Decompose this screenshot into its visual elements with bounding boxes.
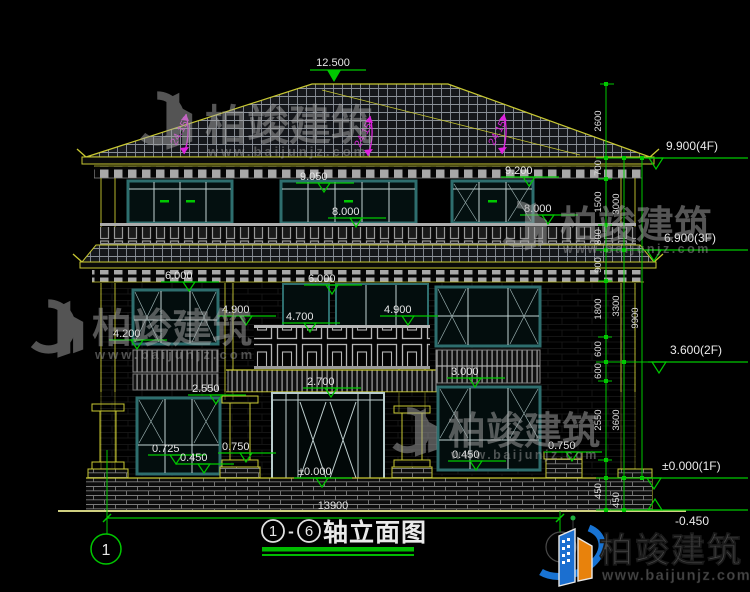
- spot-label: 0.725: [152, 443, 180, 455]
- title-axis-start: 1: [269, 523, 277, 540]
- title-axis-end: 6: [305, 523, 313, 540]
- dim-label: 3600: [611, 409, 622, 430]
- axis-bubble-number: 1: [102, 542, 111, 559]
- spot-label: 9.200: [505, 165, 533, 177]
- dentil-cornice-upper: [94, 166, 642, 178]
- dim-label: 700: [593, 160, 604, 176]
- dim-label: 1800: [593, 298, 604, 319]
- spot-label: 2.700: [307, 376, 335, 388]
- balcony-lattice-railing: [254, 325, 430, 369]
- dim-label: 600: [593, 341, 604, 357]
- title-underline-thin: [262, 554, 414, 556]
- elevation-drawing: 12.500 24.15° 24.15° 24.15° 9.050 9.200 …: [0, 0, 750, 592]
- dim-label: 2600: [593, 110, 604, 131]
- window-handle-mark: [488, 200, 497, 203]
- spot-label: 8.000: [332, 206, 360, 218]
- title-text: 轴立面图: [323, 518, 427, 547]
- dentil-band: [94, 166, 642, 178]
- flag-label: 3.600(2F): [670, 343, 722, 357]
- logo-url: www.baijunjz.com: [601, 568, 750, 584]
- spot-label: 6.000: [165, 270, 193, 282]
- window-left-1f: [137, 398, 220, 474]
- spot-label: 4.700: [286, 311, 314, 323]
- spot-label: 0.750: [222, 441, 250, 453]
- window-handle-mark: [344, 200, 353, 203]
- spot-label: 0.450: [180, 452, 208, 464]
- logo-tower-orange: [578, 538, 592, 581]
- dim-label: 600: [593, 363, 604, 379]
- watermark-text: 柏竣建筑: [205, 102, 373, 149]
- eave-fascia-lower: [80, 262, 656, 268]
- spot-label: 6.000: [308, 273, 336, 285]
- window-handle-mark: [186, 200, 195, 203]
- dim-label: 3300: [611, 295, 622, 316]
- watermark-url: www.baijunjz.com: [562, 242, 711, 256]
- watermark-url: www.baijunjz.com: [450, 448, 599, 462]
- watermark-url: www.baijunjz.com: [207, 144, 368, 159]
- spot-label: 9.050: [300, 171, 328, 183]
- bay-window-right-2f: [436, 287, 540, 346]
- spot-label: 3.000: [451, 366, 479, 378]
- logo-tower-blue: [559, 529, 575, 586]
- spot-label: ±0.000: [298, 466, 332, 478]
- spot-label: 4.900: [384, 304, 412, 316]
- cad-elevation-canvas: 12.500 24.15° 24.15° 24.15° 9.050 9.200 …: [0, 0, 750, 592]
- window-3f-left: [128, 181, 232, 223]
- flag-label: -0.450: [675, 514, 709, 528]
- watermark-url: www.baijunjz.com: [94, 347, 255, 362]
- logo-name: 柏竣建筑: [599, 531, 743, 570]
- watermark-left: 柏竣建筑 www.baijunjz.com: [34, 301, 256, 362]
- dim-total-label: 9900: [630, 307, 641, 328]
- dim-label: 900: [593, 257, 604, 273]
- watermark-text: 柏竣建筑: [560, 205, 712, 247]
- window-handle-mark: [160, 200, 169, 203]
- flag-label: ±0.000(1F): [662, 459, 721, 473]
- title-dash: -: [288, 522, 294, 541]
- spot-label: 2.550: [192, 383, 220, 395]
- base-plinth-course: [86, 478, 652, 511]
- spot-elevation-label: 12.500: [316, 57, 350, 69]
- watermark-text: 柏竣建筑: [448, 411, 600, 453]
- title-underline-thick: [262, 547, 414, 552]
- dim-label: 450: [611, 492, 622, 508]
- overall-width-label: 13900: [318, 500, 349, 512]
- dim-label: 450: [593, 483, 604, 499]
- flag-label: 9.900(4F): [666, 139, 718, 153]
- watermark-text: 柏竣建筑: [92, 307, 252, 351]
- logo-antenna-dot: [571, 516, 576, 521]
